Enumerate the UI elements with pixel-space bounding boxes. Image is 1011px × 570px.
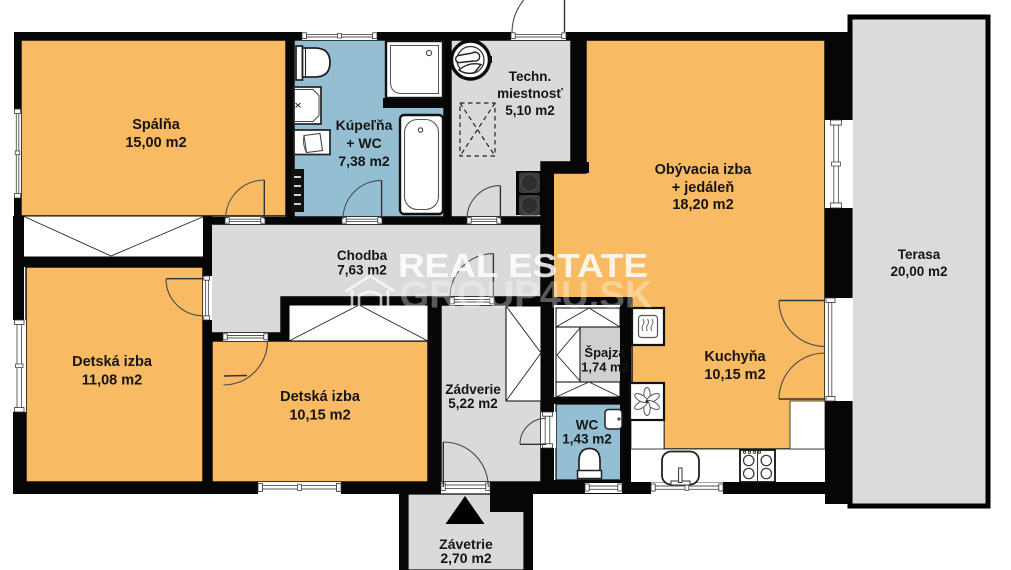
svg-text:2,70 m2: 2,70 m2 — [440, 550, 492, 566]
svg-text:Chodba: Chodba — [337, 248, 388, 263]
svg-text:11,08 m2: 11,08 m2 — [82, 373, 142, 389]
svg-text:WC: WC — [576, 418, 599, 433]
svg-text:miestnosť: miestnosť — [497, 86, 563, 101]
svg-text:1,74 m2: 1,74 m2 — [581, 360, 629, 375]
svg-text:20,00 m2: 20,00 m2 — [890, 264, 947, 279]
svg-text:Detská izba: Detská izba — [280, 389, 361, 405]
svg-text:Kúpeľňa: Kúpeľňa — [336, 117, 393, 133]
svg-text:Techn.: Techn. — [509, 69, 552, 84]
svg-text:Zádverie: Zádverie — [445, 382, 501, 397]
svg-text:+ WC: + WC — [346, 135, 381, 151]
svg-text:10,15 m2: 10,15 m2 — [704, 367, 765, 383]
svg-text:GROUP4U.SK: GROUP4U.SK — [400, 275, 654, 317]
svg-text:5,10 m2: 5,10 m2 — [505, 103, 555, 118]
svg-text:1,43 m2: 1,43 m2 — [562, 432, 612, 447]
svg-text:Špajza: Špajza — [584, 345, 626, 360]
svg-text:18,20 m2: 18,20 m2 — [672, 197, 733, 213]
svg-text:5,22 m2: 5,22 m2 — [448, 396, 498, 411]
svg-text:Obývacia izba: Obývacia izba — [655, 162, 753, 178]
svg-text:Spálňa: Spálňa — [132, 117, 180, 133]
svg-text:10,15 m2: 10,15 m2 — [289, 408, 350, 424]
svg-text:Detská izba: Detská izba — [72, 354, 153, 370]
svg-text:7,63 m2: 7,63 m2 — [337, 263, 387, 278]
svg-text:Kuchyňa: Kuchyňa — [704, 349, 766, 365]
svg-text:15,00 m2: 15,00 m2 — [125, 135, 186, 151]
svg-text:Terasa: Terasa — [898, 247, 941, 262]
svg-text:7,38 m2: 7,38 m2 — [338, 153, 390, 169]
svg-text:+ jedáleň: + jedáleň — [672, 180, 734, 196]
